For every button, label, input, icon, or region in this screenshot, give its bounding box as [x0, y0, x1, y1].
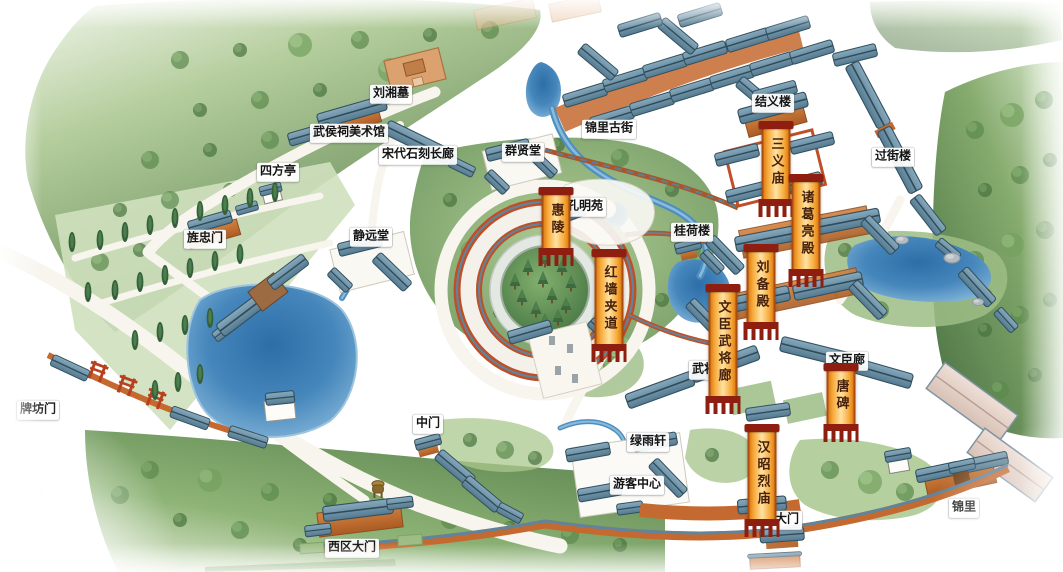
map-label-guihe-tower: 桂荷楼 — [671, 223, 713, 242]
map-label-middle-gate: 中门 — [413, 415, 443, 434]
map-label-song-stone-corridor: 宋代石刻长廊 — [379, 146, 457, 165]
map-label-jinli: 锦里 — [949, 499, 979, 518]
map-label-hanzhaolie-temple: 汉昭烈庙 — [748, 431, 777, 519]
map-label-art-museum: 武侯祠美术馆 — [310, 124, 388, 143]
map-label-jieyi-tower: 结义楼 — [752, 94, 794, 113]
map-canvas: 刘湘墓武侯祠美术馆宋代石刻长廊四方亭旌忠门静远堂群贤堂锦里古街结义楼过街楼孔明苑… — [0, 0, 1063, 572]
map-label-guojie-tower: 过街楼 — [872, 148, 914, 167]
map-label-wenchen-wujiang-corridor: 文臣武将廊 — [709, 291, 738, 396]
map-label-liuxiang-tomb: 刘湘墓 — [370, 85, 412, 104]
map-label-sifang-pavilion: 四方亭 — [257, 163, 299, 182]
map-label-liubei-hall: 刘备殿 — [747, 251, 776, 322]
map-label-paifang-gate: 牌坊门 — [17, 401, 59, 420]
map-label-jingzhong-gate: 旌忠门 — [184, 230, 226, 249]
map-label-jinli-old-street: 锦里古街 — [582, 120, 636, 139]
map-label-jingyuan-hall: 静远堂 — [350, 228, 392, 247]
map-labels: 刘湘墓武侯祠美术馆宋代石刻长廊四方亭旌忠门静远堂群贤堂锦里古街结义楼过街楼孔明苑… — [0, 0, 1063, 572]
map-label-qunxian-hall: 群贤堂 — [502, 143, 544, 162]
map-label-sanyi-temple: 三义庙 — [762, 128, 791, 199]
map-label-zhuge-liang-hall: 诸葛亮殿 — [792, 181, 821, 269]
map-label-west-district-gate: 西区大门 — [325, 539, 379, 558]
map-label-lvyu-pavilion: 绿雨轩 — [627, 433, 669, 452]
map-label-red-wall-lane: 红墙夹道 — [595, 256, 624, 344]
map-label-tang-stele: 唐碑 — [827, 370, 856, 424]
map-label-huiling-tomb: 惠陵 — [542, 194, 571, 248]
map-label-visitor-center: 游客中心 — [610, 476, 664, 495]
